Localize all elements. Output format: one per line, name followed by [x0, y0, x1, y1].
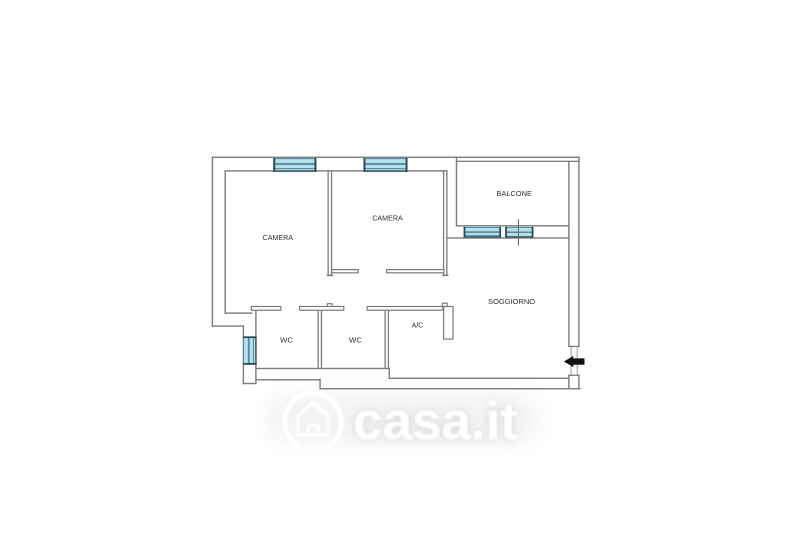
- svg-text:WC: WC: [349, 335, 363, 344]
- svg-text:CAMERA: CAMERA: [263, 233, 294, 242]
- svg-text:WC: WC: [280, 335, 294, 344]
- svg-text:A/C: A/C: [412, 321, 424, 330]
- svg-text:CAMERA: CAMERA: [372, 214, 403, 223]
- svg-text:SOGGIORNO: SOGGIORNO: [488, 297, 535, 306]
- svg-text:BALCONE: BALCONE: [496, 189, 532, 198]
